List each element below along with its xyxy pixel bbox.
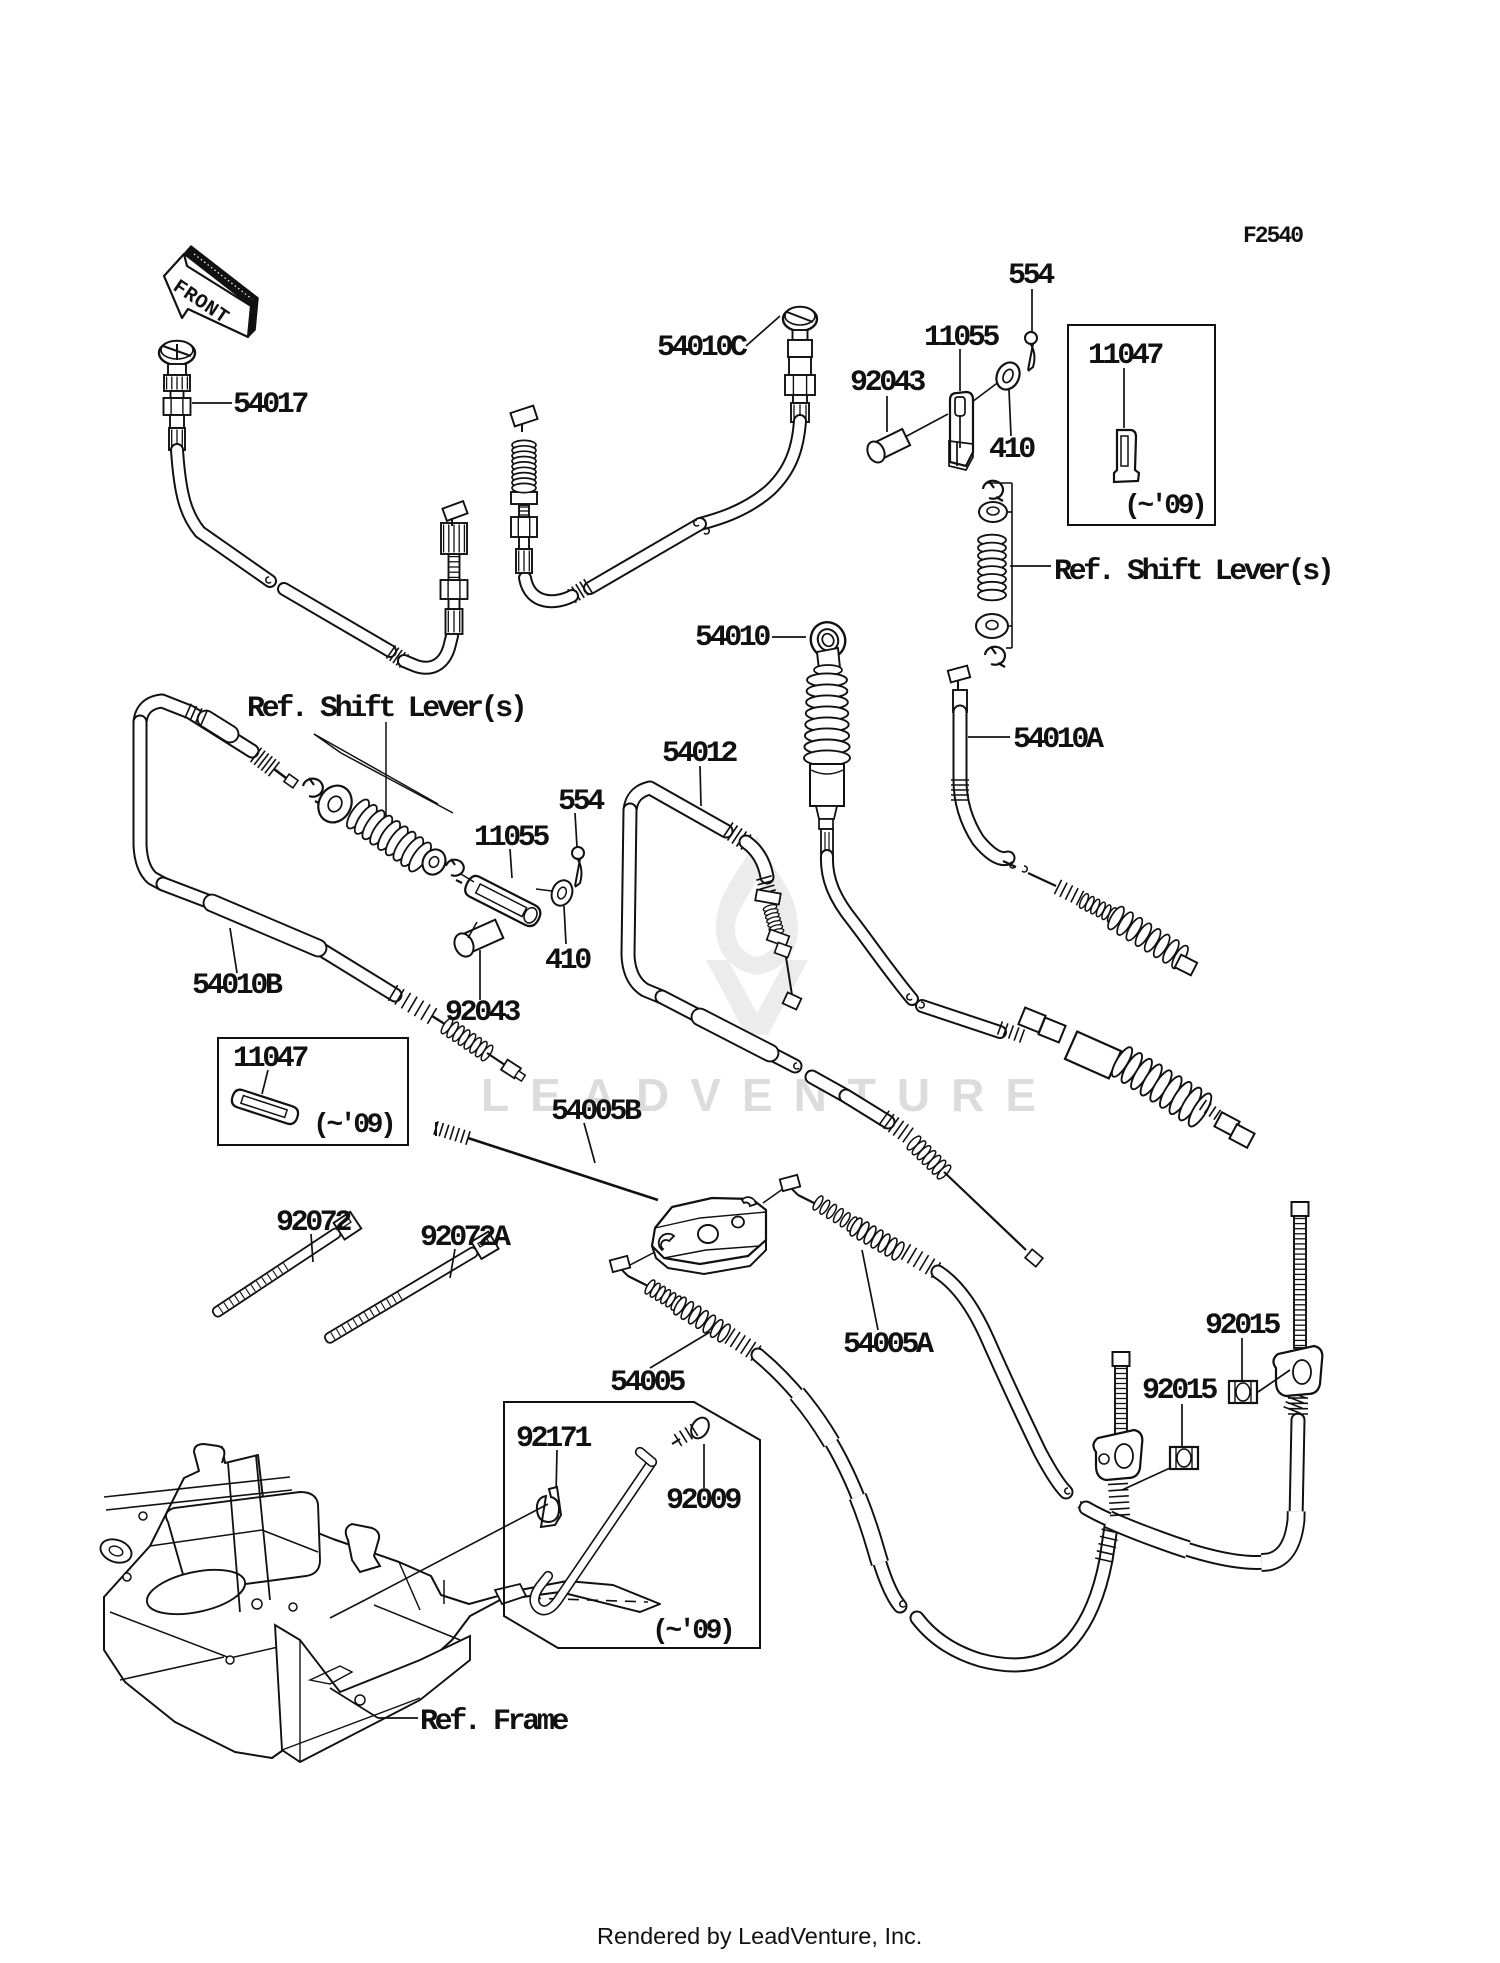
svg-text:(~'09): (~'09)	[1124, 491, 1204, 522]
svg-text:Ref. Shift Lever(s): Ref. Shift Lever(s)	[1054, 555, 1331, 589]
svg-text:Ref. Shift Lever(s): Ref. Shift Lever(s)	[247, 692, 524, 726]
svg-text:11047: 11047	[233, 1042, 307, 1076]
svg-text:Ref. Frame: Ref. Frame	[420, 1705, 568, 1739]
svg-text:54005: 54005	[610, 1366, 685, 1400]
svg-text:54010C: 54010C	[657, 331, 748, 365]
svg-text:92015: 92015	[1142, 1374, 1217, 1408]
svg-text:54010: 54010	[695, 621, 770, 655]
svg-text:11055: 11055	[474, 821, 549, 855]
svg-text:11055: 11055	[924, 321, 999, 355]
svg-text:92043: 92043	[445, 996, 520, 1030]
svg-text:54010A: 54010A	[1013, 723, 1104, 757]
svg-text:92015: 92015	[1205, 1309, 1280, 1343]
svg-text:Rendered by LeadVenture, Inc.: Rendered by LeadVenture, Inc.	[597, 1923, 922, 1949]
svg-text:(~'09): (~'09)	[313, 1110, 393, 1141]
svg-text:410: 410	[545, 944, 591, 978]
svg-text:(~'09): (~'09)	[652, 1616, 732, 1647]
svg-text:410: 410	[989, 433, 1035, 467]
svg-text:54005A: 54005A	[843, 1328, 934, 1362]
svg-text:92009: 92009	[666, 1484, 741, 1518]
svg-text:92072: 92072	[276, 1206, 351, 1240]
svg-text:54012: 54012	[662, 737, 737, 771]
svg-text:F2540: F2540	[1243, 223, 1303, 249]
svg-text:54005B: 54005B	[551, 1095, 642, 1129]
svg-text:92043: 92043	[850, 366, 925, 400]
svg-text:92171: 92171	[516, 1422, 591, 1456]
svg-text:554: 554	[1008, 259, 1055, 293]
svg-text:11047: 11047	[1088, 339, 1162, 373]
svg-text:54017: 54017	[233, 388, 307, 422]
svg-text:54010B: 54010B	[192, 969, 283, 1003]
svg-text:92072A: 92072A	[420, 1221, 511, 1255]
svg-text:554: 554	[558, 785, 605, 819]
